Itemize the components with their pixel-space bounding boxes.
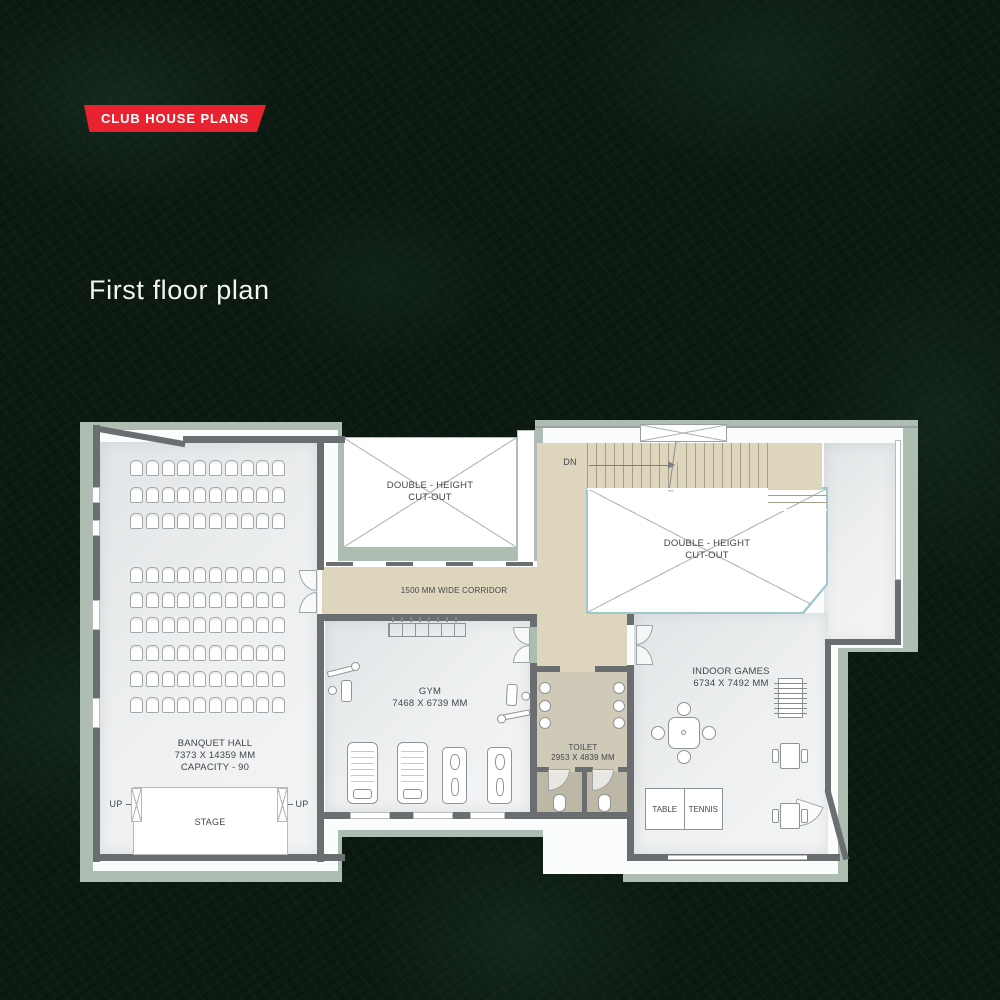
- washbasin: [613, 682, 625, 694]
- cutout-top-label: DOUBLE - HEIGHT CUT-OUT: [387, 480, 473, 504]
- bike-seat: [495, 754, 505, 770]
- machine-weight: [497, 714, 506, 723]
- treadmill-console: [353, 789, 372, 799]
- wall-stall-3: [618, 767, 627, 772]
- banquet-chair: [241, 487, 254, 503]
- bike-frame: [451, 778, 459, 796]
- washbasin: [539, 717, 551, 729]
- exercise-bike: [487, 747, 512, 804]
- banquet-chair: [177, 617, 190, 633]
- window-banquet-1: [92, 487, 100, 503]
- banquet-chair: [193, 645, 206, 661]
- inset-gym-bottom: [325, 818, 535, 830]
- banquet-chair: [225, 487, 238, 503]
- corridor-label: 1500 MM WIDE CORRIDOR: [401, 586, 507, 596]
- banquet-chair: [256, 592, 269, 608]
- banquet-chair: [146, 487, 159, 503]
- banquet-chair: [193, 460, 206, 476]
- cutout-line1: DOUBLE - HEIGHT: [664, 538, 750, 550]
- banquet-chair: [256, 617, 269, 633]
- banquet-chair: [225, 617, 238, 633]
- banquet-chair: [162, 671, 175, 687]
- machine-weight: [328, 686, 337, 695]
- banquet-chair: [272, 487, 285, 503]
- games-chair: [772, 809, 779, 823]
- page-title: First floor plan: [89, 275, 270, 306]
- washbasin: [613, 700, 625, 712]
- banquet-chair: [209, 487, 222, 503]
- inset-toilet-bottom: [535, 818, 623, 830]
- banquet-chair: [146, 617, 159, 633]
- banquet-chair: [225, 592, 238, 608]
- banquet-dims: 7373 X 14359 MM: [175, 750, 256, 762]
- banquet-chair: [272, 592, 285, 608]
- treadmill-belt: [351, 746, 374, 782]
- banquet-chair: [130, 513, 143, 529]
- banquet-chair: [130, 671, 143, 687]
- table-tennis-table: TABLE TENNIS: [645, 788, 723, 830]
- club-house-plans-badge: CLUB HOUSE PLANS: [84, 105, 266, 132]
- wall-games-step: [825, 639, 901, 645]
- wall-banquet-right-upper: [317, 437, 324, 570]
- washbasin: [539, 700, 551, 712]
- up-tick-right: [288, 804, 293, 805]
- machine-seat: [341, 680, 352, 702]
- machine-weight: [351, 662, 360, 671]
- banquet-chair: [146, 460, 159, 476]
- indoor-games-name: INDOOR GAMES: [692, 666, 769, 678]
- banquet-chair: [209, 460, 222, 476]
- wall-toilet-top-right: [595, 666, 627, 672]
- treadmill: [397, 742, 428, 804]
- banquet-chair: [256, 513, 269, 529]
- window-gym-3: [470, 812, 505, 819]
- card-table-chair: [677, 750, 691, 764]
- staircase-arrow-head: [668, 461, 675, 469]
- banquet-chair: [130, 697, 143, 713]
- window-banquet-2: [92, 520, 100, 536]
- poster: CLUB HOUSE PLANS First floor plan: [0, 0, 1000, 1000]
- banquet-chair: [146, 645, 159, 661]
- banquet-chair: [241, 567, 254, 583]
- corridor-railing-posts: [326, 562, 533, 566]
- exercise-bike: [442, 747, 467, 804]
- banquet-capacity: CAPACITY - 90: [175, 762, 256, 774]
- toilet-dims: 2953 X 4839 MM: [551, 753, 615, 763]
- gym-dims: 7468 X 6739 MM: [392, 698, 467, 710]
- window-banquet-4: [92, 698, 100, 728]
- banquet-chair: [256, 567, 269, 583]
- banquet-chair: [272, 617, 285, 633]
- banquet-chair: [256, 645, 269, 661]
- banquet-chair: [256, 697, 269, 713]
- dumbbell-rack: [388, 623, 466, 637]
- wall-banquet-right-lower: [317, 614, 324, 862]
- stage-label: STAGE: [195, 816, 226, 828]
- banquet-chair: [272, 513, 285, 529]
- stair-landing: [768, 443, 822, 490]
- window-games-bottom: [668, 855, 807, 860]
- banquet-chair: [130, 567, 143, 583]
- indoor-games-dims: 6734 X 7492 MM: [692, 678, 769, 690]
- banquet-chair: [241, 460, 254, 476]
- cutout-line1: DOUBLE - HEIGHT: [387, 480, 473, 492]
- banquet-name: BANQUET HALL: [175, 738, 256, 750]
- banquet-chair: [241, 513, 254, 529]
- stair-landing-edge: [768, 509, 827, 511]
- banquet-chair: [256, 460, 269, 476]
- card-table-chair: [677, 702, 691, 716]
- up-tick-left: [126, 804, 131, 805]
- machine-seat: [506, 684, 518, 707]
- window-banquet-3: [92, 600, 100, 630]
- wall-lobby-right-upper: [627, 614, 634, 625]
- banquet-chair: [272, 567, 285, 583]
- foosball-rods: [774, 682, 807, 714]
- banquet-chair: [272, 460, 285, 476]
- banquet-chair: [130, 617, 143, 633]
- gym-label: GYM 7468 X 6739 MM: [392, 686, 467, 710]
- banquet-chair: [193, 592, 206, 608]
- banquet-chair: [272, 645, 285, 661]
- wall-games-right-lower: [825, 645, 831, 792]
- washbasin: [539, 682, 551, 694]
- banquet-chair: [177, 645, 190, 661]
- wall-toilet-top-left: [537, 666, 560, 672]
- washbasin: [613, 717, 625, 729]
- banquet-chair: [209, 671, 222, 687]
- wall-lobby-right-lower: [627, 665, 634, 861]
- banquet-chair: [177, 487, 190, 503]
- banquet-chair: [256, 671, 269, 687]
- banquet-chair: [162, 513, 175, 529]
- banquet-chair: [225, 671, 238, 687]
- banquet-chair: [146, 567, 159, 583]
- banquet-chair: [177, 592, 190, 608]
- stage-stairs-right: [277, 788, 288, 822]
- banquet-chair: [146, 592, 159, 608]
- gym-machine-right: [494, 675, 533, 727]
- wall-games-right-upper: [895, 580, 901, 642]
- banquet-chair: [272, 671, 285, 687]
- window-right-glazing: [895, 440, 901, 580]
- games-table-2: [780, 803, 800, 829]
- up-label-left: UP: [110, 798, 123, 810]
- banquet-chair: [193, 513, 206, 529]
- banquet-chair: [209, 617, 222, 633]
- machine-weight: [521, 691, 530, 700]
- banquet-chair: [177, 513, 190, 529]
- banquet-chair: [130, 592, 143, 608]
- lobby-lower: [587, 613, 627, 672]
- stair-landing-steps: [768, 490, 827, 510]
- cutout-line2: CUT-OUT: [387, 492, 473, 504]
- banquet-chair: [225, 567, 238, 583]
- banquet-chair: [162, 592, 175, 608]
- banquet-chair: [177, 697, 190, 713]
- bike-seat: [450, 754, 460, 770]
- toilet-name: TOILET: [551, 743, 615, 753]
- window-gym-2: [413, 812, 453, 819]
- banquet-chair: [177, 567, 190, 583]
- toilet-wc: [598, 794, 611, 812]
- banquet-chair: [193, 567, 206, 583]
- banquet-chair: [177, 460, 190, 476]
- table-tennis-label-left: TABLE: [646, 789, 685, 829]
- card-table-chair: [702, 726, 716, 740]
- card-table-chair: [651, 726, 665, 740]
- dn-label: DN: [563, 457, 576, 467]
- window-gym-1: [350, 812, 390, 819]
- wall-banquet-bottom: [93, 854, 345, 861]
- dumbbell-rack-weights: [392, 617, 462, 622]
- banquet-chair: [146, 513, 159, 529]
- banquet-chair: [225, 645, 238, 661]
- card-table-dot: [681, 730, 686, 735]
- games-chair: [801, 749, 808, 763]
- banquet-chair: [209, 645, 222, 661]
- banquet-chair: [241, 697, 254, 713]
- banquet-chair: [162, 460, 175, 476]
- banquet-chair: [272, 697, 285, 713]
- toilet-wc: [553, 794, 566, 812]
- banquet-chair: [209, 567, 222, 583]
- badge-label: CLUB HOUSE PLANS: [101, 111, 249, 126]
- banquet-chair: [193, 671, 206, 687]
- banquet-chair: [162, 697, 175, 713]
- games-chair: [801, 809, 808, 823]
- banquet-chair: [256, 487, 269, 503]
- table-tennis-label-right: TENNIS: [685, 789, 723, 829]
- games-table-1: [780, 743, 800, 769]
- roof-vent-box: [640, 424, 727, 442]
- banquet-chair: [177, 671, 190, 687]
- toilet-label: TOILET 2953 X 4839 MM: [551, 743, 615, 763]
- banquet-chair: [130, 460, 143, 476]
- banquet-chair: [130, 645, 143, 661]
- banquet-chair: [162, 487, 175, 503]
- games-chair: [772, 749, 779, 763]
- gym-name: GYM: [392, 686, 467, 698]
- banquet-chair: [225, 697, 238, 713]
- treadmill-belt: [401, 746, 424, 782]
- indoor-games-room-strip: [824, 443, 895, 642]
- bike-frame: [496, 778, 504, 796]
- staircase-arrow-line: [589, 465, 669, 466]
- banquet-chair: [130, 487, 143, 503]
- gym-machine-left: [327, 660, 363, 710]
- banquet-chair: [193, 697, 206, 713]
- banquet-chair: [241, 617, 254, 633]
- up-label-right: UP: [296, 798, 309, 810]
- wall-lobby-left-upper: [530, 614, 537, 627]
- stage-stairs-left: [131, 788, 142, 822]
- floor-plan: TABLE TENNIS DOUBLE - HEIGHT CUT-OUT DOU…: [80, 420, 918, 882]
- banquet-chair: [193, 617, 206, 633]
- cutout-right-label: DOUBLE - HEIGHT CUT-OUT: [664, 538, 750, 562]
- cutout-line2: CUT-OUT: [664, 550, 750, 562]
- bridge-strip: [517, 430, 535, 566]
- treadmill-console: [403, 789, 422, 799]
- banquet-chair: [241, 645, 254, 661]
- banquet-chair: [162, 567, 175, 583]
- indoor-games-label: INDOOR GAMES 6734 X 7492 MM: [692, 666, 769, 690]
- banquet-chair: [146, 671, 159, 687]
- wall-toilet-bottom: [530, 812, 634, 819]
- lobby: [537, 443, 587, 672]
- treadmill: [347, 742, 378, 804]
- banquet-chair: [209, 513, 222, 529]
- banquet-chair: [146, 697, 159, 713]
- banquet-chair: [241, 592, 254, 608]
- banquet-chair: [193, 487, 206, 503]
- banquet-chair: [209, 592, 222, 608]
- banquet-chair: [241, 671, 254, 687]
- banquet-chair: [225, 460, 238, 476]
- banquet-label: BANQUET HALL 7373 X 14359 MM CAPACITY - …: [175, 738, 256, 774]
- banquet-chair: [162, 645, 175, 661]
- banquet-chair: [162, 617, 175, 633]
- banquet-chair: [209, 697, 222, 713]
- banquet-chair: [225, 513, 238, 529]
- wall-stall-divider: [582, 767, 587, 812]
